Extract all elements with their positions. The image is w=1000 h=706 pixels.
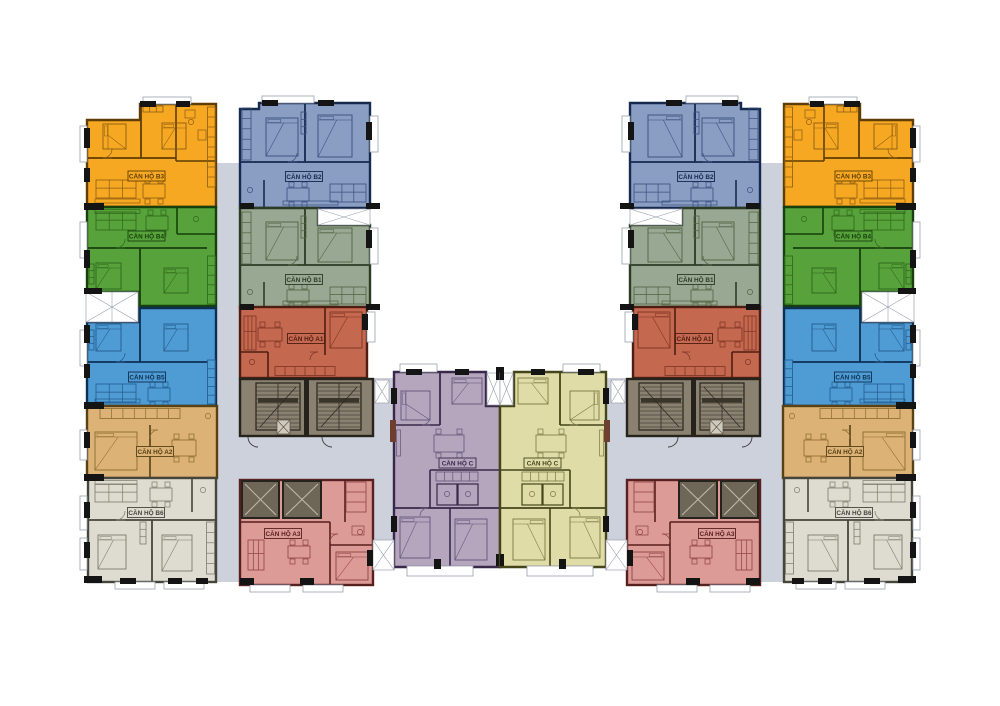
svg-text:CĂN HỘ B5: CĂN HỘ B5 <box>835 373 871 382</box>
svg-text:CĂN HỘ B4: CĂN HỘ B4 <box>129 232 165 241</box>
svg-text:CĂN HỘ A1: CĂN HỘ A1 <box>289 334 324 343</box>
svg-text:CĂN HỘ B3: CĂN HỘ B3 <box>836 172 872 181</box>
svg-text:CĂN HỘ A1: CĂN HỘ A1 <box>677 334 712 343</box>
svg-text:CĂN HỘ B4: CĂN HỘ B4 <box>836 232 872 241</box>
svg-text:CĂN HỘ B1: CĂN HỘ B1 <box>678 275 714 284</box>
svg-text:CĂN HỘ A3: CĂN HỘ A3 <box>266 529 301 538</box>
svg-text:CĂN HỘ B6: CĂN HỘ B6 <box>128 508 164 517</box>
svg-text:CĂN HỘ A2: CĂN HỘ A2 <box>828 447 863 456</box>
svg-text:CĂN HỘ B2: CĂN HỘ B2 <box>678 172 714 181</box>
svg-text:CĂN HỘ C: CĂN HỘ C <box>442 459 474 468</box>
svg-text:CĂN HỘ B1: CĂN HỘ B1 <box>286 275 322 284</box>
svg-text:CĂN HỘ B3: CĂN HỘ B3 <box>129 172 165 181</box>
svg-text:CĂN HỘ A3: CĂN HỘ A3 <box>700 529 735 538</box>
svg-text:CĂN HỘ B5: CĂN HỘ B5 <box>129 373 165 382</box>
svg-text:CĂN HỘ B2: CĂN HỘ B2 <box>286 172 322 181</box>
svg-text:CĂN HỘ B6: CĂN HỘ B6 <box>836 508 872 517</box>
svg-text:CĂN HỘ A2: CĂN HỘ A2 <box>138 447 173 456</box>
svg-text:CĂN HỘ C: CĂN HỘ C <box>527 459 559 468</box>
